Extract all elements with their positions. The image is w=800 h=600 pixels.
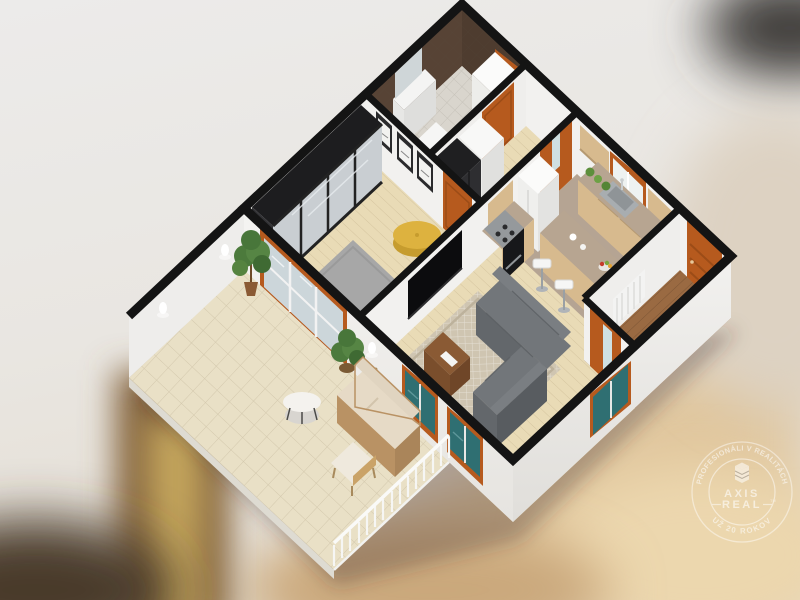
coffee-cup	[570, 234, 577, 241]
floorplan-render-image: PROFESIONÁLI V REALITÁCH UŽ 20 ROKOV AXI…	[0, 0, 800, 600]
watermark-brand-real: REAL	[722, 499, 762, 511]
axis-real-building-icon	[735, 463, 749, 484]
outdoor-side-table	[283, 392, 321, 424]
watermark-tm: TM	[770, 498, 776, 503]
coffee-cup	[580, 244, 586, 250]
floorplan-svg: PROFESIONÁLI V REALITÁCH UŽ 20 ROKOV AXI…	[0, 0, 800, 600]
door-handle	[690, 260, 694, 264]
